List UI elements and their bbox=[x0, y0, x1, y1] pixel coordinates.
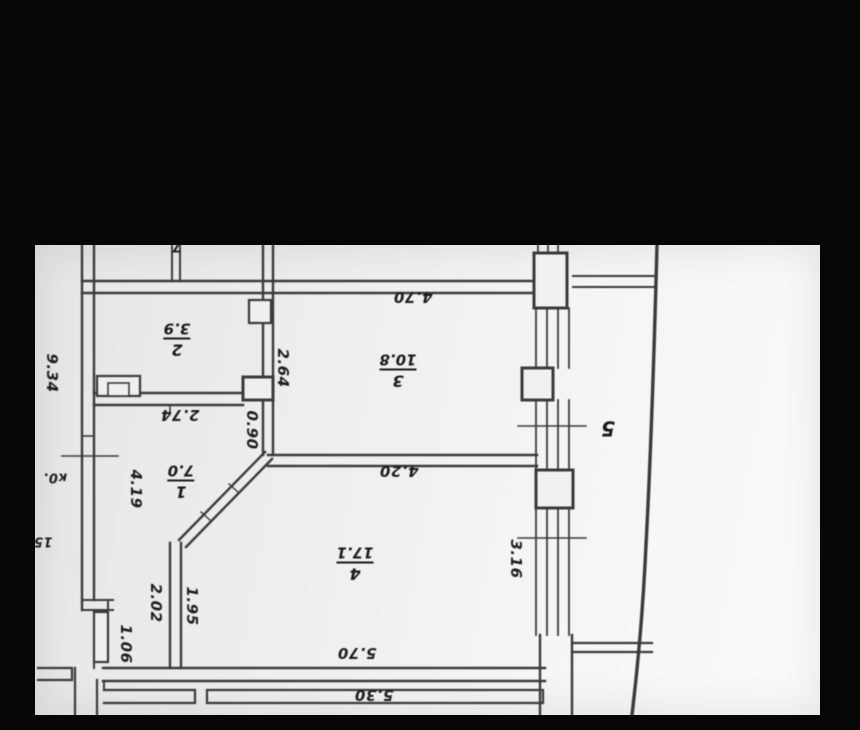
dim-closet-top: 2.02 bbox=[147, 583, 165, 622]
room-label-1: 1 7.0 bbox=[168, 462, 195, 501]
partial-label-left-upper: к0. bbox=[43, 470, 67, 485]
room-label-5: 5 bbox=[594, 419, 622, 438]
floor-plan: 2 3.9 3 10.8 1 7.0 4 17.1 5 9.34 4.70 2.… bbox=[35, 245, 820, 715]
room-label-3: 3 10.8 bbox=[379, 351, 416, 390]
room-number: 1 bbox=[168, 480, 195, 501]
dim-balcony-wall: 3.16 bbox=[507, 539, 525, 578]
dim-room1-left: 4.19 bbox=[127, 469, 145, 508]
dim-outer-left: 9.34 bbox=[43, 353, 61, 392]
partial-label-left-lower: 15 bbox=[35, 534, 53, 549]
dim-room1-right: 0.90 bbox=[243, 410, 261, 449]
partial-label-top-edge: 7 bbox=[172, 245, 182, 254]
room-number: 2 bbox=[164, 338, 191, 359]
floor-plan-walls-svg bbox=[35, 245, 820, 715]
dim-outer-bottom: 5.30 bbox=[354, 686, 393, 704]
room-area: 10.8 bbox=[379, 351, 416, 369]
room-area: 17.1 bbox=[336, 544, 373, 562]
screenshot-stage: 2 3.9 3 10.8 1 7.0 4 17.1 5 9.34 4.70 2.… bbox=[0, 0, 860, 730]
room-number: 5 bbox=[594, 419, 622, 438]
room-label-4: 4 17.1 bbox=[336, 544, 373, 583]
dim-closet-left: 1.06 bbox=[117, 624, 135, 663]
room-number: 4 bbox=[336, 562, 373, 583]
room-number: 3 bbox=[379, 369, 416, 390]
room-area: 7.0 bbox=[168, 462, 195, 480]
dim-room4-left: 1.95 bbox=[183, 586, 201, 625]
room-label-2: 2 3.9 bbox=[164, 320, 191, 359]
dim-room3-left: 2.64 bbox=[274, 348, 292, 387]
dim-room1-top: 2.74 bbox=[160, 406, 199, 424]
dim-room3-top: 4.70 bbox=[393, 288, 432, 306]
room-area: 3.9 bbox=[164, 320, 191, 338]
dim-room3-bottom: 4.20 bbox=[379, 462, 418, 480]
paper-sheet: 2 3.9 3 10.8 1 7.0 4 17.1 5 9.34 4.70 2.… bbox=[35, 245, 820, 715]
dim-room4-bottom: 5.70 bbox=[337, 644, 376, 662]
